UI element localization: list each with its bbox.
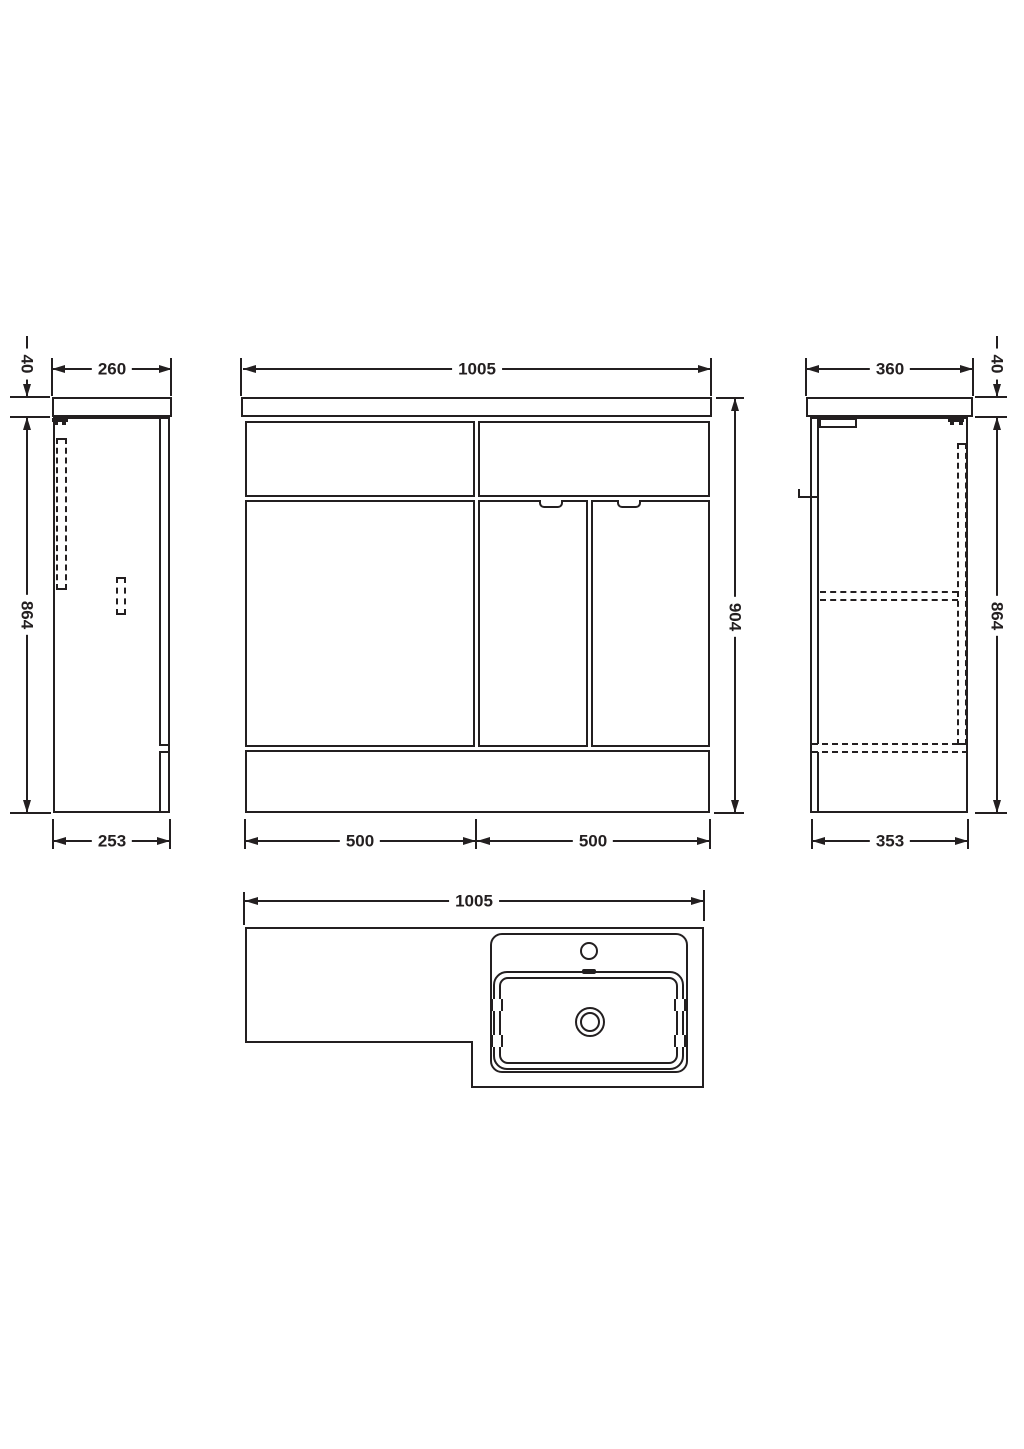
dim-label: 353 [870, 833, 910, 850]
hidden-hinge-strip [957, 443, 967, 745]
arrowhead [731, 398, 739, 411]
hidden-shelf-line [820, 599, 958, 601]
arrowhead [477, 837, 490, 845]
dim-label: 260 [92, 361, 132, 378]
dim-label: 864 [989, 596, 1006, 636]
door-finger-pull [539, 500, 563, 508]
hidden-base-line [812, 751, 968, 753]
arrowhead [159, 365, 172, 373]
dim-label: 40 [19, 349, 36, 380]
arrowhead [698, 365, 711, 373]
upper-panel-left [245, 421, 475, 497]
arrowhead [697, 837, 710, 845]
arrowhead [53, 837, 66, 845]
vanity-door-right [591, 500, 710, 747]
arrowhead [960, 365, 973, 373]
extension-line [170, 358, 172, 396]
rim-fixing-mark [674, 1035, 686, 1047]
door-finger-pull [617, 500, 641, 508]
worktop-side-right [806, 397, 973, 417]
front-edge-line [159, 417, 161, 744]
hidden-handle-block [116, 577, 126, 615]
vanity-door-left [478, 500, 588, 747]
cabinet-side-right [810, 417, 968, 813]
extension-line [10, 812, 51, 814]
drawer-side-rail [819, 418, 857, 428]
waste-drain-inner [580, 1012, 600, 1032]
rim-fixing-mark [491, 1035, 503, 1047]
plan-outline-wc-section [245, 927, 473, 1043]
extension-line [805, 358, 807, 396]
cabinet-side-left [53, 417, 170, 813]
arrowhead [812, 837, 825, 845]
rim-fixing-mark [491, 999, 503, 1011]
arrowhead [243, 365, 256, 373]
door-catch-bracket [799, 496, 818, 498]
edge-break-line [159, 751, 170, 753]
extension-line [975, 416, 1007, 418]
arrowhead [955, 837, 968, 845]
dim-label: 40 [989, 349, 1006, 380]
hinge-plate-foot [54, 422, 58, 425]
extension-line [972, 358, 974, 396]
arrowhead [245, 897, 258, 905]
arrowhead [157, 837, 170, 845]
dim-label: 253 [92, 833, 132, 850]
hinge-plate-foot [62, 422, 66, 425]
extension-line [975, 812, 1007, 814]
arrowhead [731, 800, 739, 813]
dim-label: 864 [19, 595, 36, 635]
dim-label: 1005 [449, 893, 499, 910]
hidden-base-line [812, 743, 968, 745]
extension-line [710, 358, 712, 396]
technical-drawing-canvas: 260 40 864 253 [0, 0, 1024, 1449]
arrowhead [245, 837, 258, 845]
plan-step-edge [471, 1041, 473, 1088]
overflow-slot [582, 969, 596, 974]
front-edge-line-lower [159, 752, 161, 813]
door-edge-line [817, 417, 819, 744]
door-edge-line-lower [817, 752, 819, 813]
arrowhead [463, 837, 476, 845]
upper-panel-right [478, 421, 710, 497]
wc-unit-front-panel [245, 500, 475, 747]
worktop-front [241, 397, 712, 417]
extension-line [51, 358, 53, 396]
arrowhead [806, 365, 819, 373]
dim-label: 500 [340, 833, 380, 850]
dim-label: 500 [573, 833, 613, 850]
hidden-shelf-line [820, 591, 958, 593]
dim-label: 904 [727, 597, 744, 637]
hinge-plate-foot [959, 422, 963, 425]
rim-fixing-mark [674, 999, 686, 1011]
door-catch-bracket [798, 489, 800, 498]
dim-label: 360 [870, 361, 910, 378]
extension-line [714, 812, 744, 814]
hinge-plate-foot [950, 422, 954, 425]
extension-line [10, 396, 50, 398]
tap-hole [580, 942, 598, 960]
extension-line [703, 890, 705, 921]
dim-label: 1005 [452, 361, 502, 378]
edge-break-line [159, 744, 170, 746]
hidden-hinge-strip [56, 438, 67, 590]
arrowhead [52, 365, 65, 373]
extension-line [240, 358, 242, 396]
extension-line [975, 396, 1007, 398]
plinth-front [245, 750, 710, 813]
arrowhead [691, 897, 704, 905]
worktop-side-left [52, 397, 172, 417]
extension-line [716, 397, 744, 399]
